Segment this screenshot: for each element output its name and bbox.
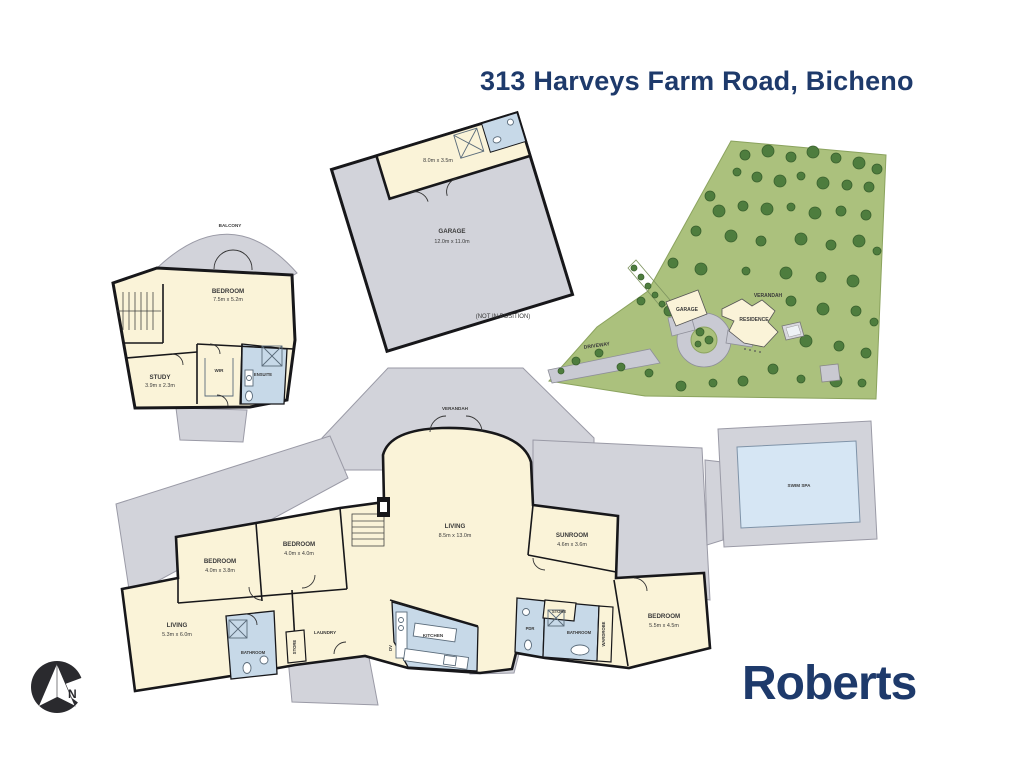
- tree-icon: [817, 303, 829, 315]
- tree-icon: [695, 341, 701, 347]
- basin-icon: [523, 609, 530, 616]
- toilet-icon: [525, 640, 532, 650]
- tree-icon: [870, 318, 878, 326]
- tree-icon: [752, 172, 762, 182]
- wall: [241, 344, 242, 404]
- site-shed: [820, 364, 840, 382]
- tree-icon: [595, 349, 603, 357]
- bath-icon: [571, 645, 589, 655]
- living2-label: LIVING: [167, 622, 188, 629]
- tree-icon: [637, 297, 645, 305]
- store1-label: STORE: [292, 640, 297, 655]
- tree-icon: [816, 272, 826, 282]
- upper-bedroom-label: BEDROOM: [212, 288, 244, 295]
- store2-label: STORE: [552, 609, 567, 614]
- bedroom1-dims: 4.0m x 3.8m: [205, 568, 235, 574]
- verandah-label: VERANDAH: [442, 406, 469, 411]
- tree-icon: [858, 379, 866, 387]
- tree-icon: [847, 275, 859, 287]
- tree-icon: [645, 369, 653, 377]
- tree-icon: [652, 292, 658, 298]
- basin-icon: [260, 656, 268, 664]
- bathroom2-label: BATHROOM: [567, 630, 592, 635]
- garage-note: (NOT IN POSITION): [476, 314, 531, 320]
- tree-icon: [809, 207, 821, 219]
- toilet-icon: [246, 391, 253, 401]
- bedroom2-dims: 4.0m x 4.0m: [284, 551, 314, 557]
- tree-icon: [797, 172, 805, 180]
- tree-icon: [787, 203, 795, 211]
- kitchen-label: KITCHEN: [423, 633, 444, 638]
- balcony-label: BALCONY: [219, 223, 242, 228]
- tree-icon: [786, 152, 796, 162]
- tree-icon: [659, 301, 665, 307]
- tree-icon: [696, 328, 704, 336]
- tree-icon: [645, 283, 651, 289]
- garage-label: GARAGE: [438, 228, 465, 235]
- swim-spa-label: SWIM SPA: [788, 483, 812, 488]
- tree-icon: [861, 210, 871, 220]
- tree-icon: [853, 157, 865, 169]
- bedroom2-label: BEDROOM: [283, 541, 315, 548]
- tree-icon: [851, 306, 861, 316]
- floorplan-image: 313 Harveys Farm Road, Bicheno D: [0, 0, 1024, 768]
- garage-dims: 12.0m x 11.0m: [434, 239, 470, 245]
- tree-icon: [617, 363, 625, 371]
- study-dims: 3.9m x 2.3m: [145, 383, 175, 389]
- tree-icon: [872, 164, 882, 174]
- site-residence-label: RESIDENCE: [739, 317, 769, 323]
- tree-icon: [842, 180, 852, 190]
- tree-icon: [807, 146, 819, 158]
- upper-landing: [176, 408, 247, 442]
- tree-icon: [740, 150, 750, 160]
- living2-dims: 5.3m x 6.0m: [162, 632, 192, 638]
- tree-icon: [638, 274, 644, 280]
- room-bathroom1: [226, 611, 277, 679]
- fireplace-icon: [380, 502, 387, 512]
- tree-icon: [834, 341, 844, 351]
- site-plan: DRIVEWAY GARAGE RESIDENCE VERANDAH: [548, 141, 886, 399]
- sunroom-label: SUNROOM: [556, 532, 588, 539]
- tree-icon: [853, 235, 865, 247]
- tree-icon: [786, 296, 796, 306]
- bedroom3-label: BEDROOM: [648, 613, 680, 620]
- tree-icon: [705, 336, 713, 344]
- upper-plan: BALCONY BEDROOM 7.5m x 5.2m WIR ENSUITE …: [113, 223, 297, 442]
- tree-icon: [558, 368, 564, 374]
- tree-icon: [836, 206, 846, 216]
- tree-icon: [676, 381, 686, 391]
- pdr-label: PDR: [526, 626, 535, 631]
- residence-post: [759, 351, 761, 353]
- tree-icon: [725, 230, 737, 242]
- tree-icon: [742, 267, 750, 275]
- toilet-icon: [243, 663, 251, 674]
- living-dims: 8.5m x 13.0m: [439, 533, 472, 539]
- laundry-label: LAUNDRY: [314, 630, 336, 635]
- residence-post: [749, 349, 751, 351]
- tree-icon: [864, 182, 874, 192]
- bedroom1-label: BEDROOM: [204, 558, 236, 565]
- residence-post: [754, 350, 756, 352]
- tree-icon: [756, 236, 766, 246]
- tree-icon: [774, 175, 786, 187]
- north-label: N: [68, 687, 77, 701]
- tree-icon: [631, 265, 637, 271]
- tree-icon: [668, 258, 678, 268]
- tree-icon: [733, 168, 741, 176]
- upper-bedroom-dims: 7.5m x 5.2m: [213, 297, 243, 303]
- tree-icon: [817, 177, 829, 189]
- tree-icon: [738, 201, 748, 211]
- wir-label: WIR: [215, 368, 225, 373]
- tree-icon: [762, 145, 774, 157]
- tree-icon: [861, 348, 871, 358]
- dw-label: DV: [388, 645, 393, 651]
- garage-plan: 8.0m x 3.5m GARAGE 12.0m x 11.0m (NOT IN…: [331, 113, 572, 351]
- north-compass: N: [31, 661, 86, 713]
- sunroom-dims: 4.6m x 3.6m: [557, 542, 587, 548]
- tree-icon: [713, 205, 725, 217]
- residence-post: [744, 348, 746, 350]
- site-garage-label: GARAGE: [676, 307, 699, 313]
- brand-logo: Roberts: [742, 656, 916, 711]
- tree-icon: [831, 153, 841, 163]
- tree-icon: [768, 364, 778, 374]
- study-label: STUDY: [150, 374, 172, 381]
- tree-icon: [826, 240, 836, 250]
- tree-icon: [873, 247, 881, 255]
- tree-icon: [705, 191, 715, 201]
- tree-icon: [709, 379, 717, 387]
- tree-icon: [738, 376, 748, 386]
- garage-storage-dims: 8.0m x 3.5m: [423, 158, 453, 164]
- tree-icon: [695, 263, 707, 275]
- site-verandah-label: VERANDAH: [754, 293, 783, 299]
- tree-icon: [797, 375, 805, 383]
- bathroom1-label: BATHROOM: [241, 650, 266, 655]
- living-label: LIVING: [445, 523, 466, 530]
- tree-icon: [780, 267, 792, 279]
- tree-icon: [572, 357, 580, 365]
- tree-icon: [795, 233, 807, 245]
- wardrobe-label: WARDROBE: [601, 621, 606, 646]
- ensuite-label: ENSUITE: [254, 372, 272, 377]
- tree-icon: [761, 203, 773, 215]
- tree-icon: [691, 226, 701, 236]
- floorplan-drawing: DRIVEWAY GARAGE RESIDENCE VERANDAH 8.0m …: [0, 0, 1024, 768]
- bedroom3-dims: 5.5m x 4.5m: [649, 623, 679, 629]
